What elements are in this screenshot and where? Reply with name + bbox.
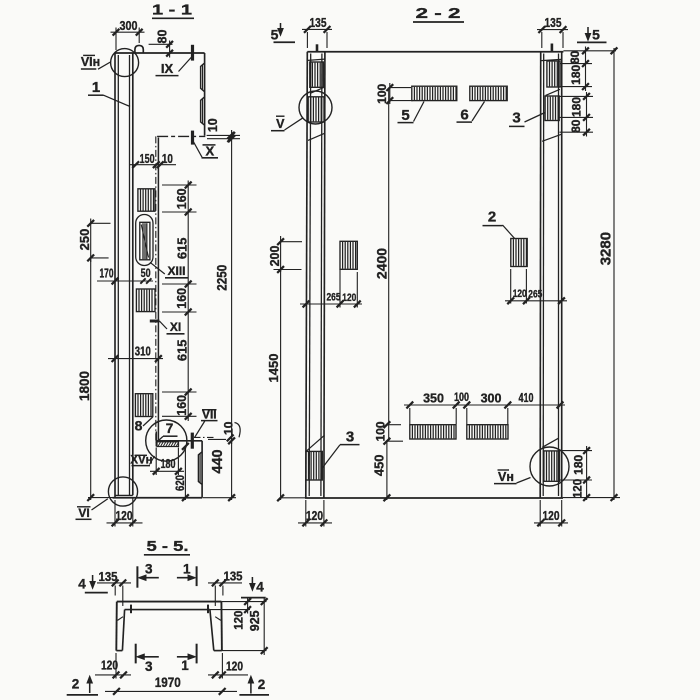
svg-text:5: 5 (401, 107, 409, 124)
svg-text:1: 1 (92, 79, 100, 96)
svg-text:VI: VI (78, 506, 89, 520)
svg-text:250: 250 (77, 229, 92, 251)
svg-text:2400: 2400 (374, 248, 390, 279)
svg-text:200: 200 (268, 246, 282, 267)
svg-text:120: 120 (342, 292, 356, 304)
svg-text:80: 80 (568, 50, 582, 64)
svg-text:4: 4 (78, 577, 86, 592)
svg-text:XVн: XVн (130, 454, 152, 466)
svg-text:5 - 5.: 5 - 5. (147, 538, 189, 555)
svg-text:5: 5 (592, 27, 600, 43)
svg-text:440: 440 (210, 449, 226, 473)
svg-text:100: 100 (375, 83, 389, 103)
svg-text:1970: 1970 (155, 675, 181, 690)
svg-text:4: 4 (256, 580, 264, 595)
svg-text:100: 100 (454, 390, 469, 404)
svg-text:180: 180 (571, 454, 585, 474)
svg-text:10: 10 (162, 152, 173, 166)
svg-text:XIII: XIII (167, 264, 185, 278)
svg-text:8: 8 (135, 418, 143, 434)
svg-text:265: 265 (327, 292, 341, 304)
svg-text:3: 3 (346, 429, 354, 446)
svg-text:150: 150 (140, 152, 155, 166)
svg-text:VII: VII (202, 408, 217, 422)
svg-text:1 - 1: 1 - 1 (152, 2, 192, 19)
svg-text:3280: 3280 (598, 232, 615, 265)
svg-text:1: 1 (181, 658, 189, 673)
svg-text:265: 265 (528, 289, 542, 301)
svg-text:300: 300 (481, 392, 502, 406)
svg-text:XI: XI (170, 320, 181, 334)
svg-text:1800: 1800 (77, 371, 92, 401)
svg-text:2: 2 (72, 677, 80, 692)
svg-text:160: 160 (175, 395, 189, 416)
svg-text:1: 1 (183, 562, 191, 577)
svg-text:50: 50 (141, 268, 151, 280)
svg-text:620: 620 (175, 475, 187, 491)
svg-text:VIн: VIн (81, 55, 100, 69)
svg-text:925: 925 (248, 610, 262, 631)
svg-text:180: 180 (570, 97, 584, 117)
svg-text:160: 160 (175, 288, 189, 309)
svg-text:V: V (276, 117, 285, 131)
svg-text:120: 120 (573, 479, 585, 498)
svg-text:6: 6 (460, 107, 468, 124)
svg-text:135: 135 (545, 16, 562, 30)
svg-text:3: 3 (145, 659, 153, 674)
svg-text:7: 7 (166, 421, 174, 436)
svg-text:160: 160 (175, 188, 189, 209)
svg-text:80: 80 (569, 119, 583, 133)
svg-text:180: 180 (161, 457, 176, 471)
svg-text:135: 135 (310, 16, 327, 30)
svg-text:120: 120 (513, 288, 527, 300)
svg-text:2: 2 (488, 209, 496, 226)
svg-text:80: 80 (156, 30, 170, 44)
svg-text:120: 120 (116, 509, 133, 523)
svg-text:310: 310 (135, 345, 151, 359)
svg-text:3: 3 (512, 110, 520, 127)
svg-text:3: 3 (145, 562, 153, 577)
svg-text:170: 170 (100, 267, 114, 281)
svg-text:450: 450 (371, 454, 386, 476)
svg-text:350: 350 (423, 392, 444, 406)
svg-text:10: 10 (206, 118, 220, 132)
svg-text:120: 120 (226, 660, 243, 674)
svg-text:120: 120 (306, 509, 323, 523)
svg-text:2: 2 (258, 677, 266, 692)
svg-text:5: 5 (271, 27, 279, 43)
svg-text:410: 410 (519, 391, 534, 405)
svg-text:1450: 1450 (266, 354, 281, 383)
svg-text:2250: 2250 (215, 265, 230, 291)
svg-text:Vн: Vн (498, 470, 514, 484)
svg-text:180: 180 (569, 64, 583, 84)
svg-text:615: 615 (175, 339, 190, 361)
svg-text:10: 10 (221, 421, 235, 435)
svg-text:615: 615 (175, 237, 190, 259)
svg-text:100: 100 (374, 421, 388, 441)
svg-text:135: 135 (224, 570, 243, 584)
svg-text:IX: IX (161, 61, 174, 76)
svg-text:2 - 2: 2 - 2 (416, 5, 461, 22)
svg-text:120: 120 (543, 509, 560, 523)
svg-text:300: 300 (120, 18, 138, 33)
svg-text:X: X (205, 144, 214, 159)
svg-text:120: 120 (233, 611, 245, 630)
